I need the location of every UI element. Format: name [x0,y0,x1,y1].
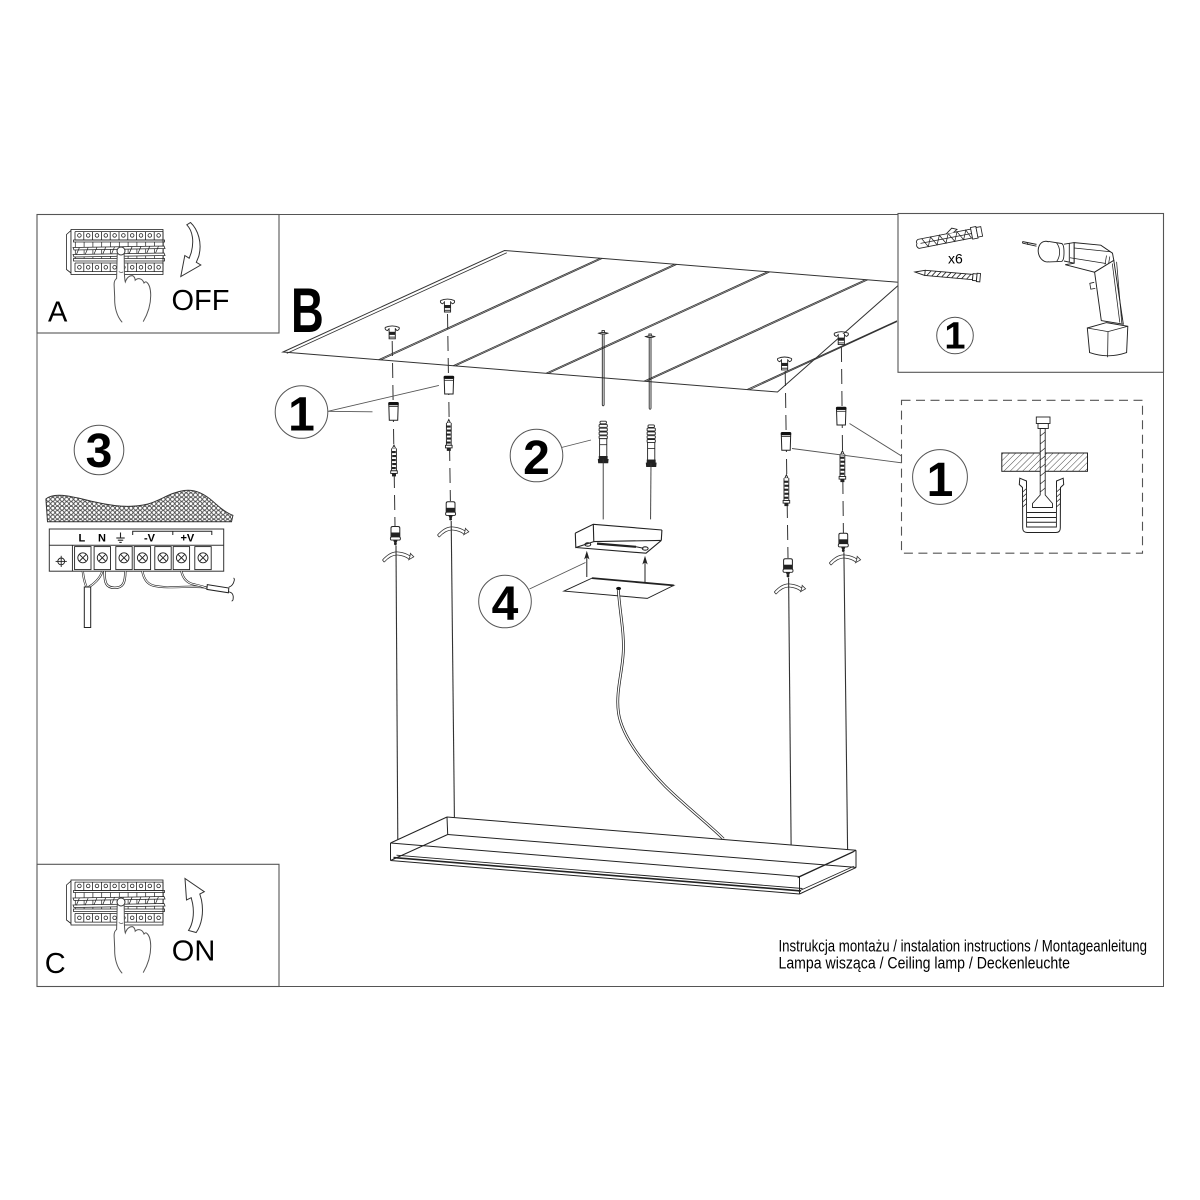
svg-text:B: B [291,275,324,346]
svg-text:-V: -V [144,533,156,545]
svg-text:OFF: OFF [172,285,230,317]
svg-text:ON: ON [172,936,216,968]
svg-text:1: 1 [927,454,954,507]
svg-text:1: 1 [944,316,965,358]
svg-text:Lampa wisząca / Ceiling lamp /: Lampa wisząca / Ceiling lamp / Deckenleu… [779,953,1071,972]
svg-text:A: A [48,297,68,329]
svg-text:x6: x6 [948,251,963,267]
svg-text:3: 3 [86,425,113,478]
svg-text:1: 1 [288,389,315,442]
svg-text:N: N [98,533,106,545]
svg-text:+V: +V [181,533,195,545]
svg-text:2: 2 [523,432,550,485]
svg-text:4: 4 [492,578,519,631]
svg-text:L: L [79,533,86,545]
svg-text:C: C [45,948,66,980]
